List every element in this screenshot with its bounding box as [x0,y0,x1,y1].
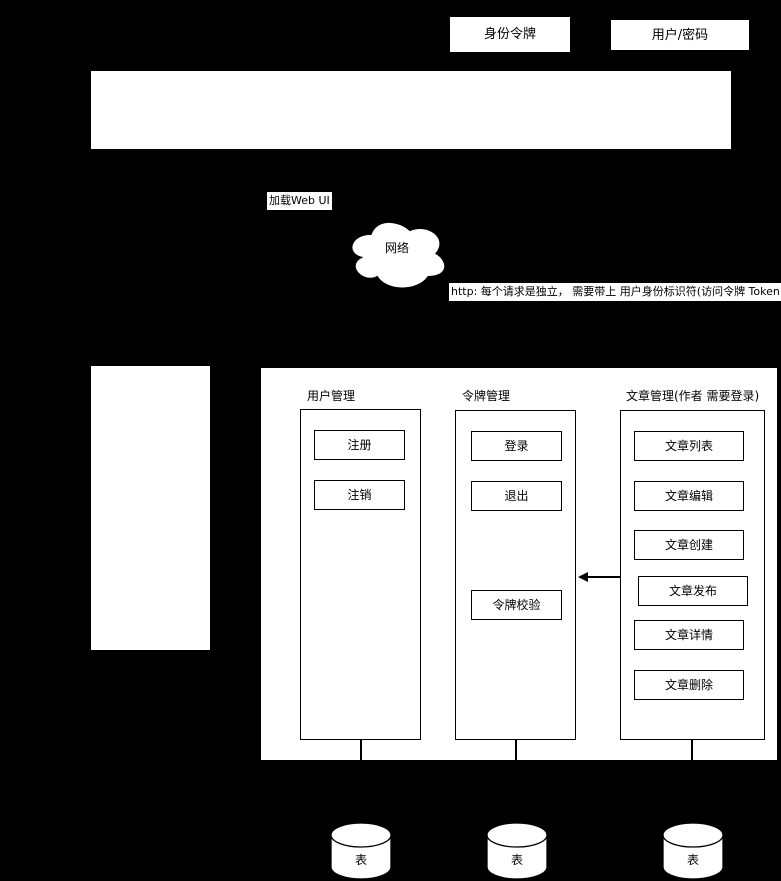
node-token-verify: 令牌校验 [471,590,562,620]
credentials-shape: 用户/密码 [611,20,749,50]
node-article-edit: 文章编辑 [634,481,744,511]
dependency-arrow-line [587,576,620,578]
database-token: 表 [486,822,548,880]
node-login-label: 登录 [504,440,528,452]
database-cylinder-icon [486,822,548,880]
node-article-delete: 文章删除 [634,670,744,700]
token-label: 身份令牌 [484,28,536,41]
module-title-user-mgmt: 用户管理 [307,387,355,404]
dependency-arrow-head-icon [578,572,588,582]
node-article-detail-label: 文章详情 [665,629,713,641]
diagram-canvas: 身份令牌 用户/密码 加载Web UI 网络 http: 每个请求是独立， 需要… [0,0,781,881]
node-article-create: 文章创建 [634,530,744,560]
token-shape: 身份令牌 [450,17,570,52]
node-token-verify-label: 令牌校验 [492,599,540,611]
node-article-list: 文章列表 [634,431,744,461]
node-article-publish-label: 文章发布 [669,585,717,597]
left-panel-box [91,366,210,650]
database-article: 表 [662,822,724,880]
node-logout-account: 注销 [314,480,405,510]
node-article-detail: 文章详情 [634,620,744,650]
node-register: 注册 [314,430,405,460]
credentials-label: 用户/密码 [652,29,708,42]
database-user-label: 表 [330,854,392,866]
node-article-list-label: 文章列表 [665,440,713,452]
database-article-label: 表 [662,854,724,866]
http-note: http: 每个请求是独立， 需要带上 用户身份标识符(访问令牌 Token) [449,283,781,301]
connector-token-db [515,740,517,760]
connector-user-db [360,740,362,760]
node-logout-account-label: 注销 [347,489,371,501]
node-register-label: 注册 [347,439,371,451]
node-login: 登录 [471,431,562,461]
module-title-article-mgmt: 文章管理(作者 需要登录) [626,387,759,404]
node-exit-label: 退出 [504,490,528,502]
database-user: 表 [330,822,392,880]
node-exit: 退出 [471,481,562,511]
connector-article-db [691,740,693,760]
node-article-publish: 文章发布 [638,576,748,606]
network-cloud: 网络 [345,215,449,292]
cloud-label: 网络 [345,239,449,256]
browser-box [91,71,731,149]
database-cylinder-icon [330,822,392,880]
node-article-delete-label: 文章删除 [665,679,713,691]
node-article-create-label: 文章创建 [665,539,713,551]
node-article-edit-label: 文章编辑 [665,490,713,502]
database-cylinder-icon [662,822,724,880]
module-title-token-mgmt: 令牌管理 [462,387,510,404]
load-webui-label: 加载Web UI [267,192,332,210]
database-token-label: 表 [486,854,548,866]
